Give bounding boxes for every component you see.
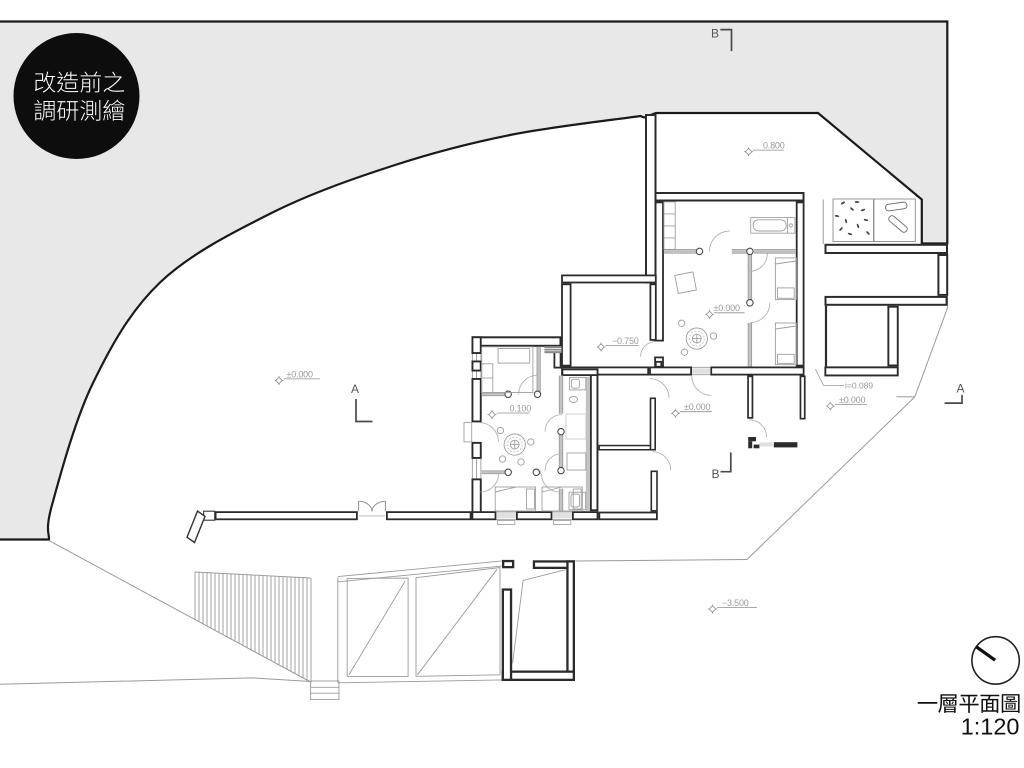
svg-text:0.800: 0.800	[763, 141, 785, 151]
svg-text:0.100: 0.100	[510, 403, 532, 413]
svg-text:A: A	[957, 382, 965, 396]
svg-text:±0.000: ±0.000	[714, 303, 740, 313]
svg-text:−3.500: −3.500	[722, 598, 749, 608]
svg-text:A: A	[351, 382, 359, 396]
svg-text:1:120: 1:120	[961, 714, 1020, 740]
svg-text:±0.000: ±0.000	[839, 395, 865, 405]
svg-text:−0.750: −0.750	[612, 336, 639, 346]
svg-text:i=0.089: i=0.089	[845, 381, 873, 391]
svg-text:±0.000: ±0.000	[684, 402, 710, 412]
svg-text:±0.000: ±0.000	[287, 369, 313, 379]
svg-text:B: B	[711, 27, 719, 41]
svg-text:B: B	[712, 467, 720, 481]
